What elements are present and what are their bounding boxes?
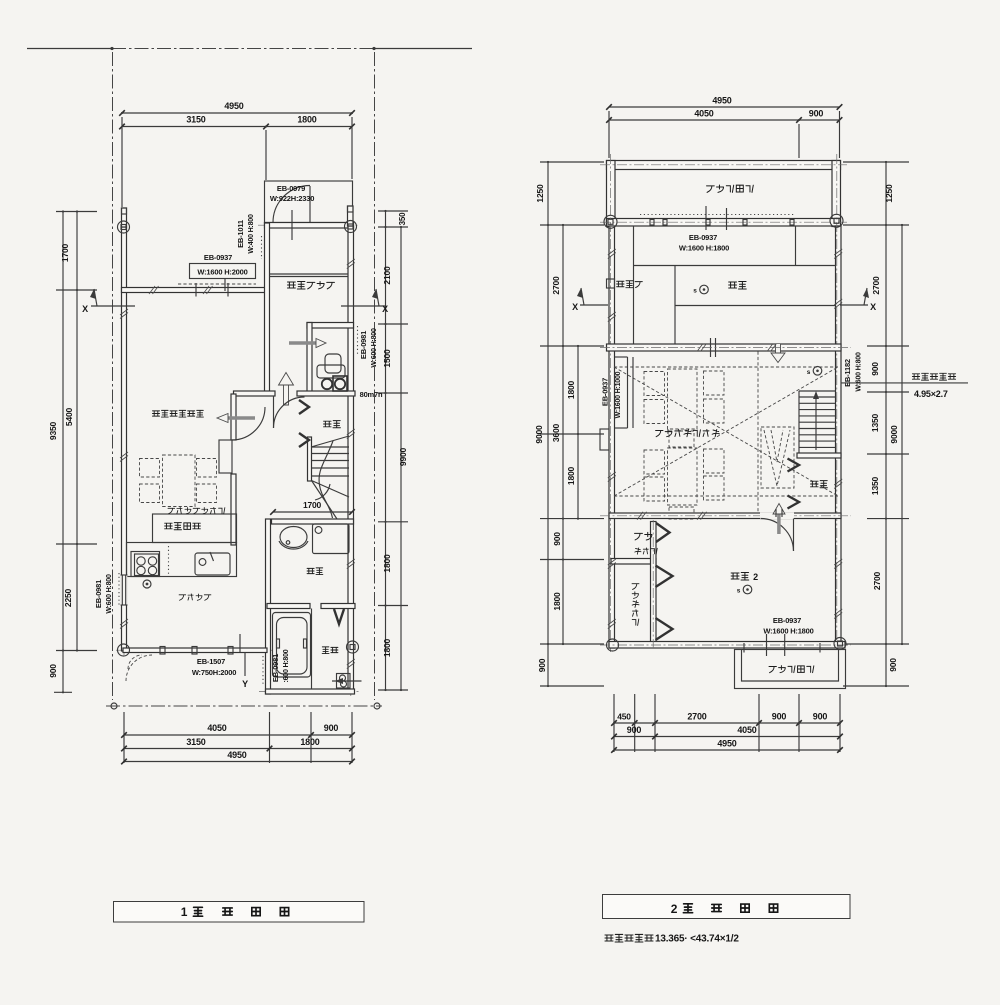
- svg-text:1: 1: [181, 905, 188, 919]
- svg-text:1700: 1700: [303, 500, 322, 510]
- svg-text:9350: 9350: [48, 421, 58, 440]
- svg-text:EB-1011: EB-1011: [236, 220, 245, 248]
- svg-text:9900: 9900: [398, 447, 408, 466]
- svg-text:900: 900: [809, 109, 824, 119]
- svg-text:900: 900: [870, 362, 880, 376]
- svg-text:4.95×2.7: 4.95×2.7: [914, 389, 948, 399]
- svg-text:4050: 4050: [737, 725, 756, 735]
- svg-text:3600: 3600: [551, 423, 561, 442]
- svg-text:1350: 1350: [870, 476, 880, 495]
- svg-text:EB-0937: EB-0937: [601, 378, 610, 406]
- svg-text:900: 900: [772, 712, 787, 722]
- svg-text:X: X: [572, 302, 578, 312]
- svg-text:4950: 4950: [227, 750, 246, 760]
- svg-text:9000: 9000: [889, 425, 899, 444]
- svg-text:EB-0937: EB-0937: [204, 253, 232, 262]
- svg-text:2100: 2100: [382, 266, 392, 285]
- svg-text:W:1600 H:2000: W:1600 H:2000: [197, 268, 247, 277]
- svg-text:2700: 2700: [872, 571, 882, 590]
- svg-text:EB-0981: EB-0981: [359, 331, 368, 359]
- svg-text:350: 350: [398, 212, 407, 225]
- svg-text:4950: 4950: [224, 101, 243, 111]
- svg-text:X: X: [382, 304, 388, 314]
- svg-text:1800: 1800: [566, 466, 576, 485]
- svg-text:W:600 H:800: W:600 H:800: [856, 352, 863, 392]
- svg-text::600 H:800: :600 H:800: [283, 649, 290, 682]
- svg-text:s: s: [737, 588, 741, 595]
- svg-text:s: s: [693, 288, 697, 295]
- svg-text:4050: 4050: [694, 109, 713, 119]
- svg-text:W:922H:2330: W:922H:2330: [270, 194, 314, 203]
- svg-text:2: 2: [671, 902, 678, 916]
- svg-text:EB-1507: EB-1507: [197, 657, 225, 666]
- svg-text:1500: 1500: [382, 349, 392, 368]
- svg-text:2700: 2700: [871, 276, 881, 295]
- svg-text:2700: 2700: [687, 712, 706, 722]
- svg-text:3150: 3150: [186, 115, 205, 125]
- svg-text:1350: 1350: [870, 413, 880, 432]
- svg-text:W:750H:2000: W:750H:2000: [192, 668, 236, 677]
- svg-text:1250: 1250: [535, 184, 545, 203]
- svg-text:X: X: [870, 302, 876, 312]
- svg-text:Y: Y: [242, 679, 248, 689]
- svg-text:4050: 4050: [207, 723, 226, 733]
- svg-text:2: 2: [753, 572, 758, 582]
- svg-text:900: 900: [888, 658, 898, 672]
- svg-text:900: 900: [552, 532, 562, 546]
- svg-text:1800: 1800: [382, 638, 392, 657]
- svg-text:900: 900: [813, 712, 828, 722]
- svg-text:13.365· <43.74×1/2: 13.365· <43.74×1/2: [655, 934, 739, 945]
- svg-text:2700: 2700: [551, 276, 561, 295]
- svg-text:3150: 3150: [186, 737, 205, 747]
- svg-text:W:1600 H:1800: W:1600 H:1800: [763, 627, 813, 636]
- svg-text:80m7n: 80m7n: [360, 390, 383, 399]
- svg-text:900: 900: [627, 725, 642, 735]
- svg-text:1800: 1800: [566, 380, 576, 399]
- svg-text:EB-0937: EB-0937: [773, 616, 801, 625]
- svg-text:W:1600 H:1800: W:1600 H:1800: [679, 244, 729, 253]
- svg-text:1800: 1800: [382, 554, 392, 573]
- svg-text:W:600 H:800: W:600 H:800: [106, 574, 113, 614]
- svg-text:EB-0937: EB-0937: [689, 233, 717, 242]
- svg-text:s: s: [807, 369, 811, 376]
- svg-text:900: 900: [324, 723, 339, 733]
- svg-text:1800: 1800: [552, 592, 562, 611]
- svg-text:EB-0979: EB-0979: [277, 184, 305, 193]
- svg-text:2250: 2250: [63, 588, 73, 607]
- svg-text:900: 900: [48, 664, 58, 678]
- svg-text:X: X: [82, 304, 88, 314]
- svg-text:W:400 H:800: W:400 H:800: [248, 214, 255, 254]
- svg-text:5400: 5400: [64, 407, 74, 426]
- svg-text:1800: 1800: [300, 737, 319, 747]
- svg-text:450: 450: [617, 712, 631, 722]
- svg-text:W:600 H:800: W:600 H:800: [371, 328, 378, 368]
- svg-text:4950: 4950: [717, 739, 736, 749]
- svg-text:W:1600 H:1000: W:1600 H:1000: [615, 371, 622, 418]
- svg-text:9000: 9000: [534, 425, 544, 444]
- svg-text:4950: 4950: [712, 96, 731, 106]
- svg-text:900: 900: [537, 658, 547, 672]
- svg-text:EB-0981: EB-0981: [271, 654, 280, 682]
- svg-text:EB-0981: EB-0981: [94, 580, 103, 608]
- svg-text:1800: 1800: [297, 115, 316, 125]
- svg-text:1700: 1700: [60, 243, 70, 262]
- svg-text:1250: 1250: [884, 184, 894, 203]
